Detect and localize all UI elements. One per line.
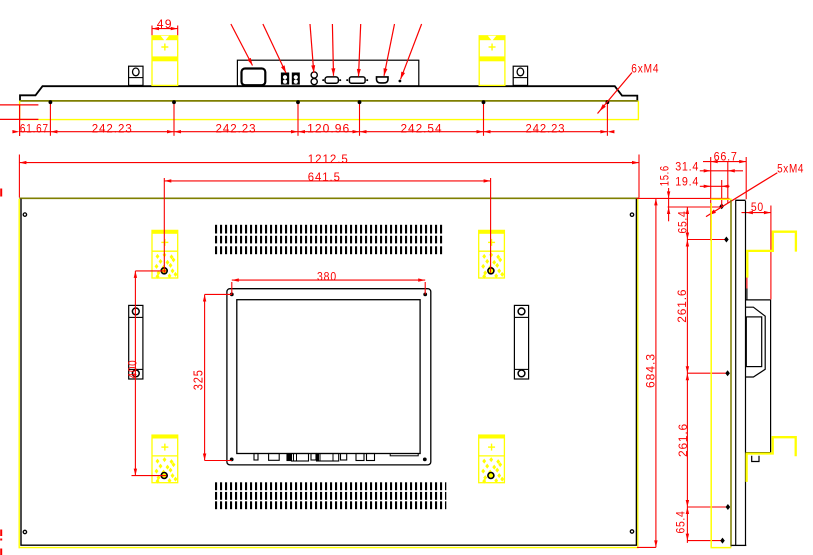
svg-text:15.6: 15.6 xyxy=(659,165,671,186)
svg-text:6xM4: 6xM4 xyxy=(631,61,659,75)
svg-text:31.4: 31.4 xyxy=(675,161,699,173)
svg-text:1212.5: 1212.5 xyxy=(308,152,349,166)
svg-text:49: 49 xyxy=(157,17,173,31)
svg-text:261.6: 261.6 xyxy=(678,423,690,457)
svg-text:65.4: 65.4 xyxy=(676,511,688,534)
svg-text:684.3: 684.3 xyxy=(643,353,657,388)
svg-text:242.54: 242.54 xyxy=(401,122,443,136)
svg-text:261.6: 261.6 xyxy=(677,289,689,323)
svg-text:65.4: 65.4 xyxy=(677,211,689,234)
svg-text:5xM4: 5xM4 xyxy=(777,164,804,176)
svg-text:242.23: 242.23 xyxy=(526,122,566,136)
svg-text:242.23: 242.23 xyxy=(92,122,133,136)
svg-text:242.23: 242.23 xyxy=(216,122,257,136)
svg-text:325: 325 xyxy=(192,369,206,390)
svg-text:120.96: 120.96 xyxy=(307,122,350,136)
svg-text:380: 380 xyxy=(317,269,337,283)
svg-text:400: 400 xyxy=(126,360,140,379)
svg-text:19.4: 19.4 xyxy=(675,177,699,189)
svg-text:641.5: 641.5 xyxy=(308,170,341,184)
svg-text:61.67: 61.67 xyxy=(20,122,49,136)
